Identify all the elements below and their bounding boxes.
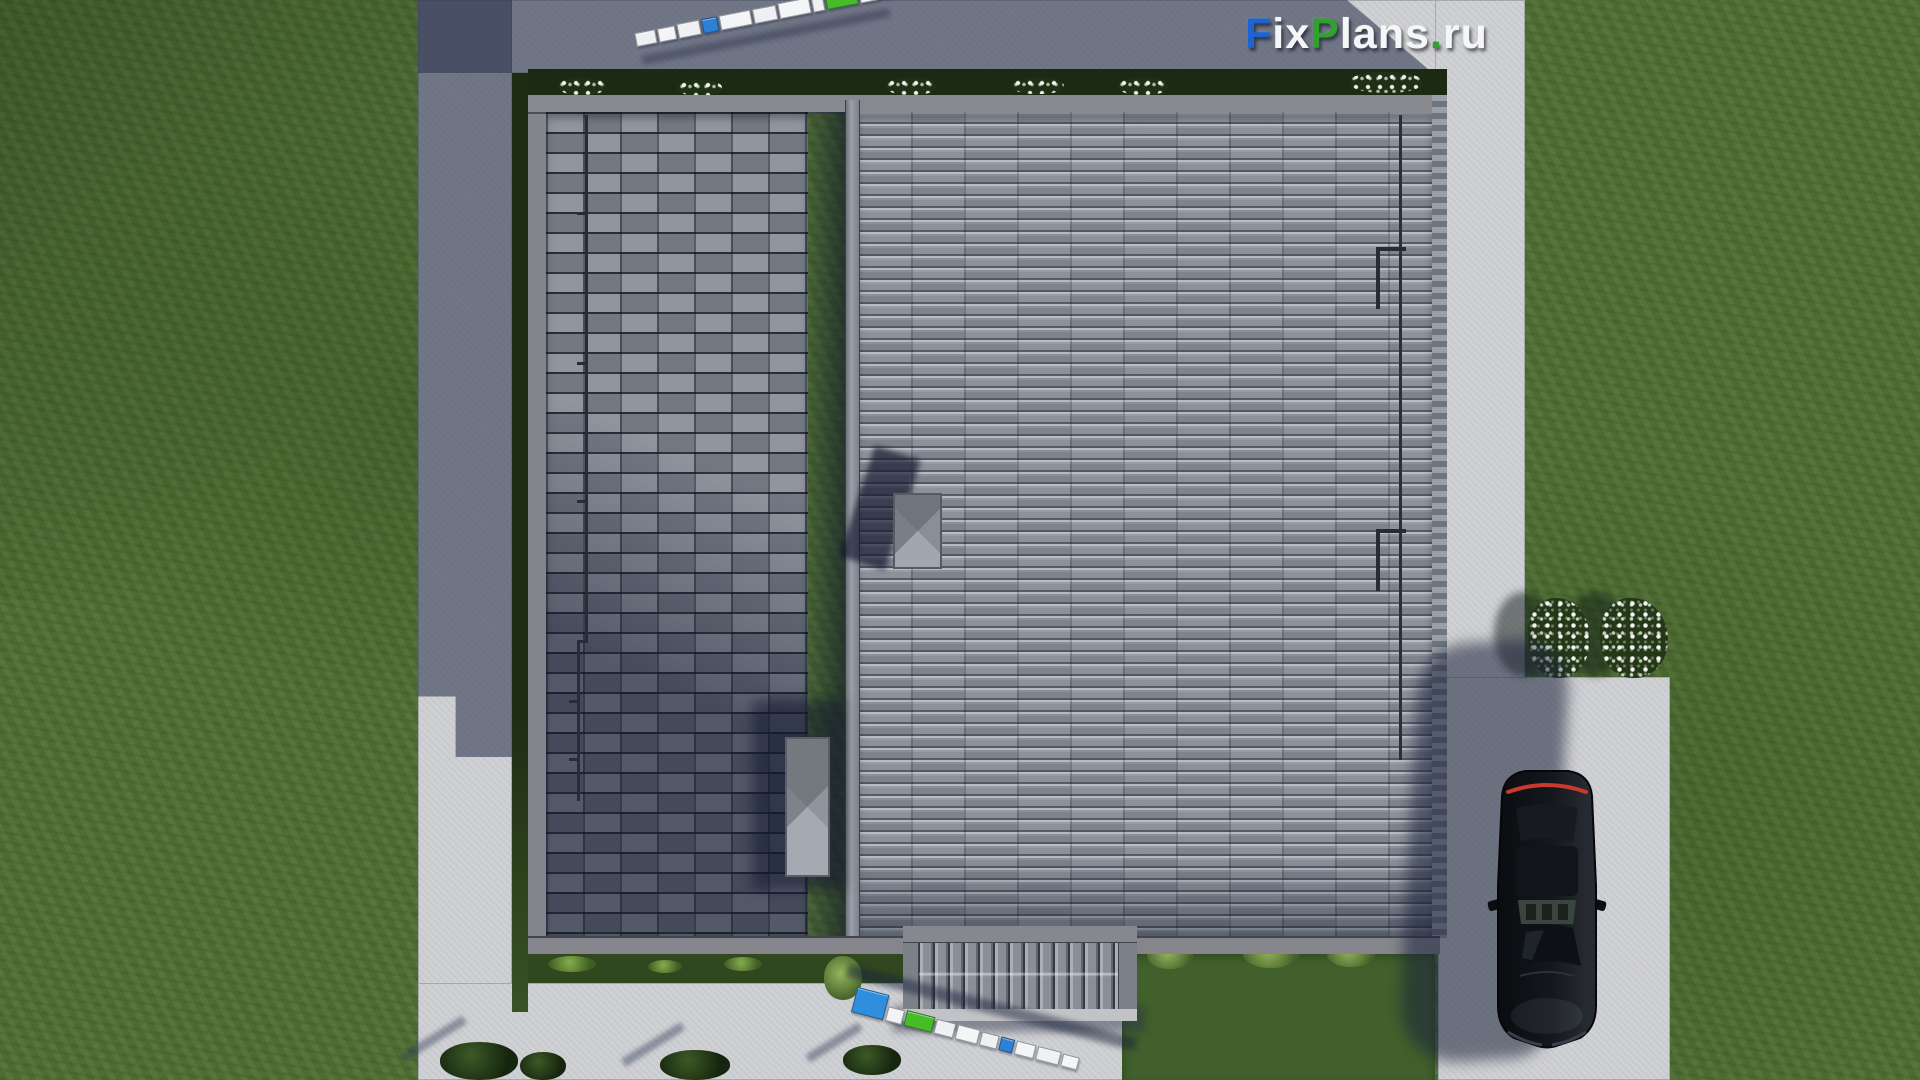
chimney-long — [785, 737, 830, 877]
conductor-clip — [569, 758, 578, 761]
hedge-flowers — [886, 78, 936, 95]
roof-right-bottom-shadow — [858, 856, 1432, 936]
conductor-clip — [577, 362, 586, 365]
dark-bush — [843, 1045, 901, 1075]
lightning-conductor-joint — [577, 640, 588, 643]
grass-tuft — [648, 960, 682, 973]
conductor-clip — [577, 500, 586, 503]
roof-step-bracket — [1376, 247, 1406, 309]
hedge-flowers — [1350, 72, 1422, 93]
canopy-header-bar — [903, 926, 1137, 943]
logo-text-part: lans — [1340, 10, 1430, 58]
canopy-rail-right — [1118, 943, 1137, 1009]
roof-step-bracket — [1376, 529, 1406, 591]
fixplans-watermark-logo[interactable]: FixPlans.ru — [1245, 10, 1488, 59]
hood-shine — [1511, 998, 1583, 1034]
dark-bush — [660, 1050, 730, 1080]
car-seat — [1558, 904, 1568, 920]
logo-text-part: ix — [1272, 10, 1310, 58]
hedge-flowers — [558, 78, 606, 95]
hedge-flowers — [678, 80, 722, 96]
logo-text-part: F — [1245, 10, 1272, 58]
dark-bush — [520, 1052, 566, 1080]
logo-text-part: P — [1310, 10, 1340, 58]
car-seat — [1526, 904, 1536, 920]
ruler-segment — [701, 16, 720, 34]
chimney-small — [893, 493, 942, 569]
car-windshield — [1513, 925, 1581, 967]
car-rear-glass — [1516, 804, 1578, 842]
ruler-segment — [811, 0, 826, 13]
grass-tuft — [724, 957, 762, 971]
logo-text-part: ru — [1443, 10, 1488, 58]
conductor-clip — [569, 700, 578, 703]
hedge-top — [528, 69, 1447, 95]
car-seat — [1542, 904, 1552, 920]
white-flower-bush — [1600, 598, 1668, 678]
garden-strip-bottom-right — [1122, 950, 1435, 1080]
hedge-flowers — [1118, 78, 1168, 95]
hedge-flowers — [1012, 78, 1064, 94]
lightning-conductor — [577, 643, 580, 801]
lightning-conductor — [1399, 115, 1402, 760]
parked-car — [1486, 766, 1608, 1050]
roof-right-plane-tiles — [858, 112, 1432, 936]
grass-tuft — [548, 956, 596, 972]
lightning-conductor — [585, 115, 588, 643]
house-shadow-on-left-path — [418, 0, 512, 757]
car-roof — [1516, 846, 1578, 896]
conductor-clip — [577, 212, 586, 215]
roof-eave-left — [528, 95, 548, 938]
dark-bush — [440, 1042, 518, 1080]
car-top-view — [1486, 766, 1608, 1050]
logo-text-part: . — [1430, 10, 1443, 58]
garden-strip-left — [512, 73, 528, 1012]
aerial-house-render: FixPlans.ru — [0, 0, 1920, 1080]
